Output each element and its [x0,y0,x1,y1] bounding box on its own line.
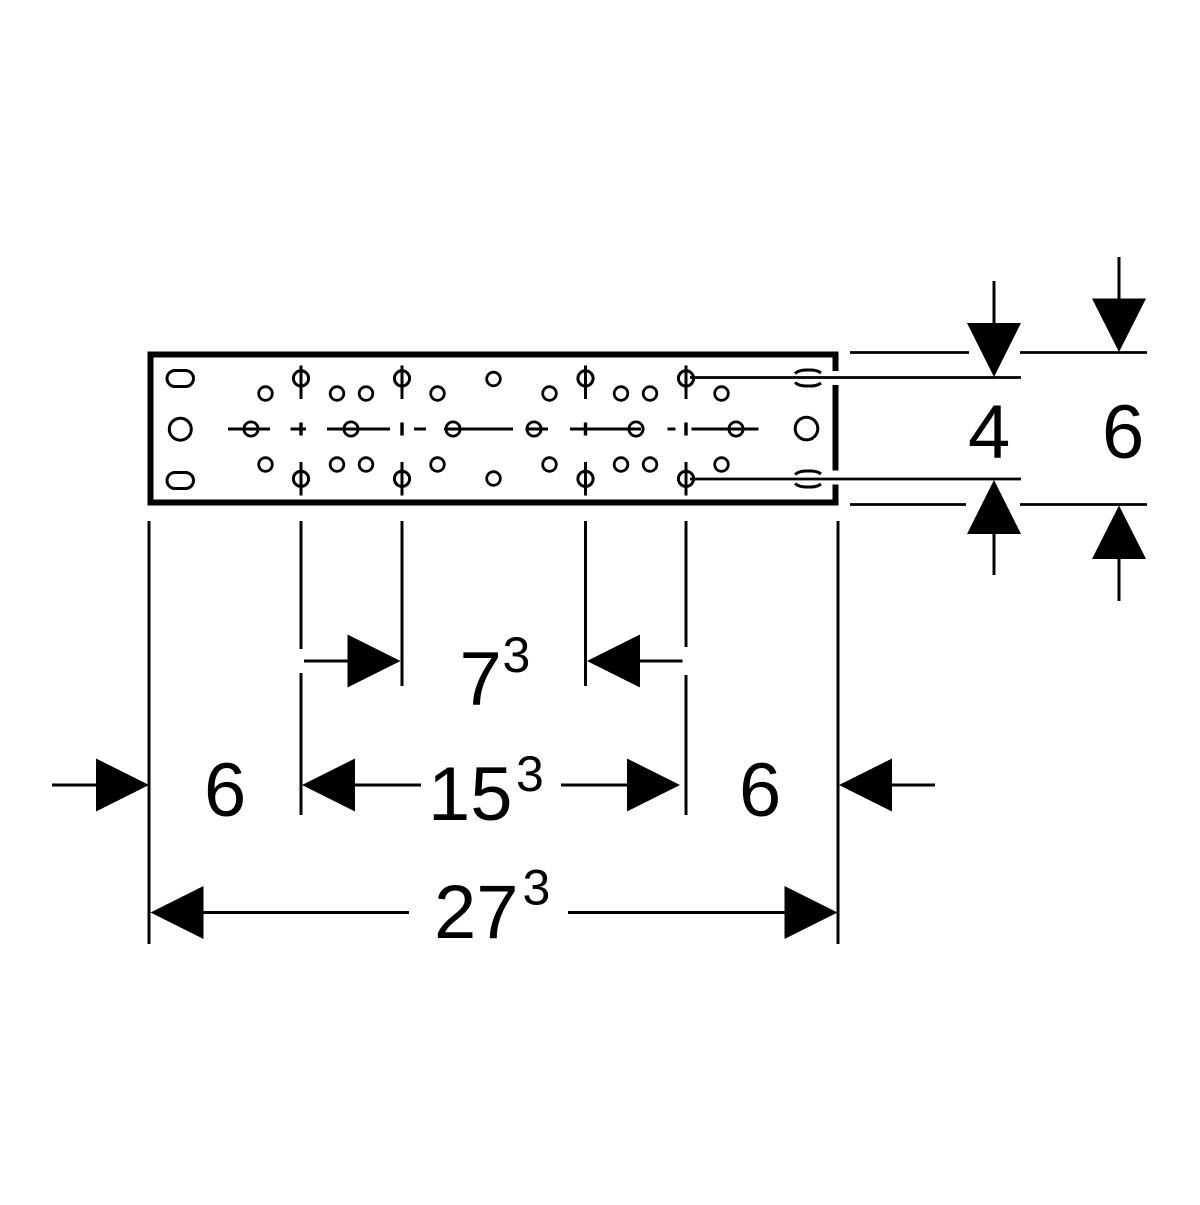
svg-text:3: 3 [516,746,544,802]
svg-text:27: 27 [434,870,519,955]
svg-text:3: 3 [503,627,531,683]
svg-text:6: 6 [204,748,246,833]
svg-text:6: 6 [1102,390,1144,475]
svg-text:3: 3 [523,860,551,916]
svg-text:4: 4 [968,390,1010,475]
svg-text:15: 15 [428,752,513,837]
svg-text:6: 6 [739,748,781,833]
svg-text:7: 7 [460,637,502,722]
